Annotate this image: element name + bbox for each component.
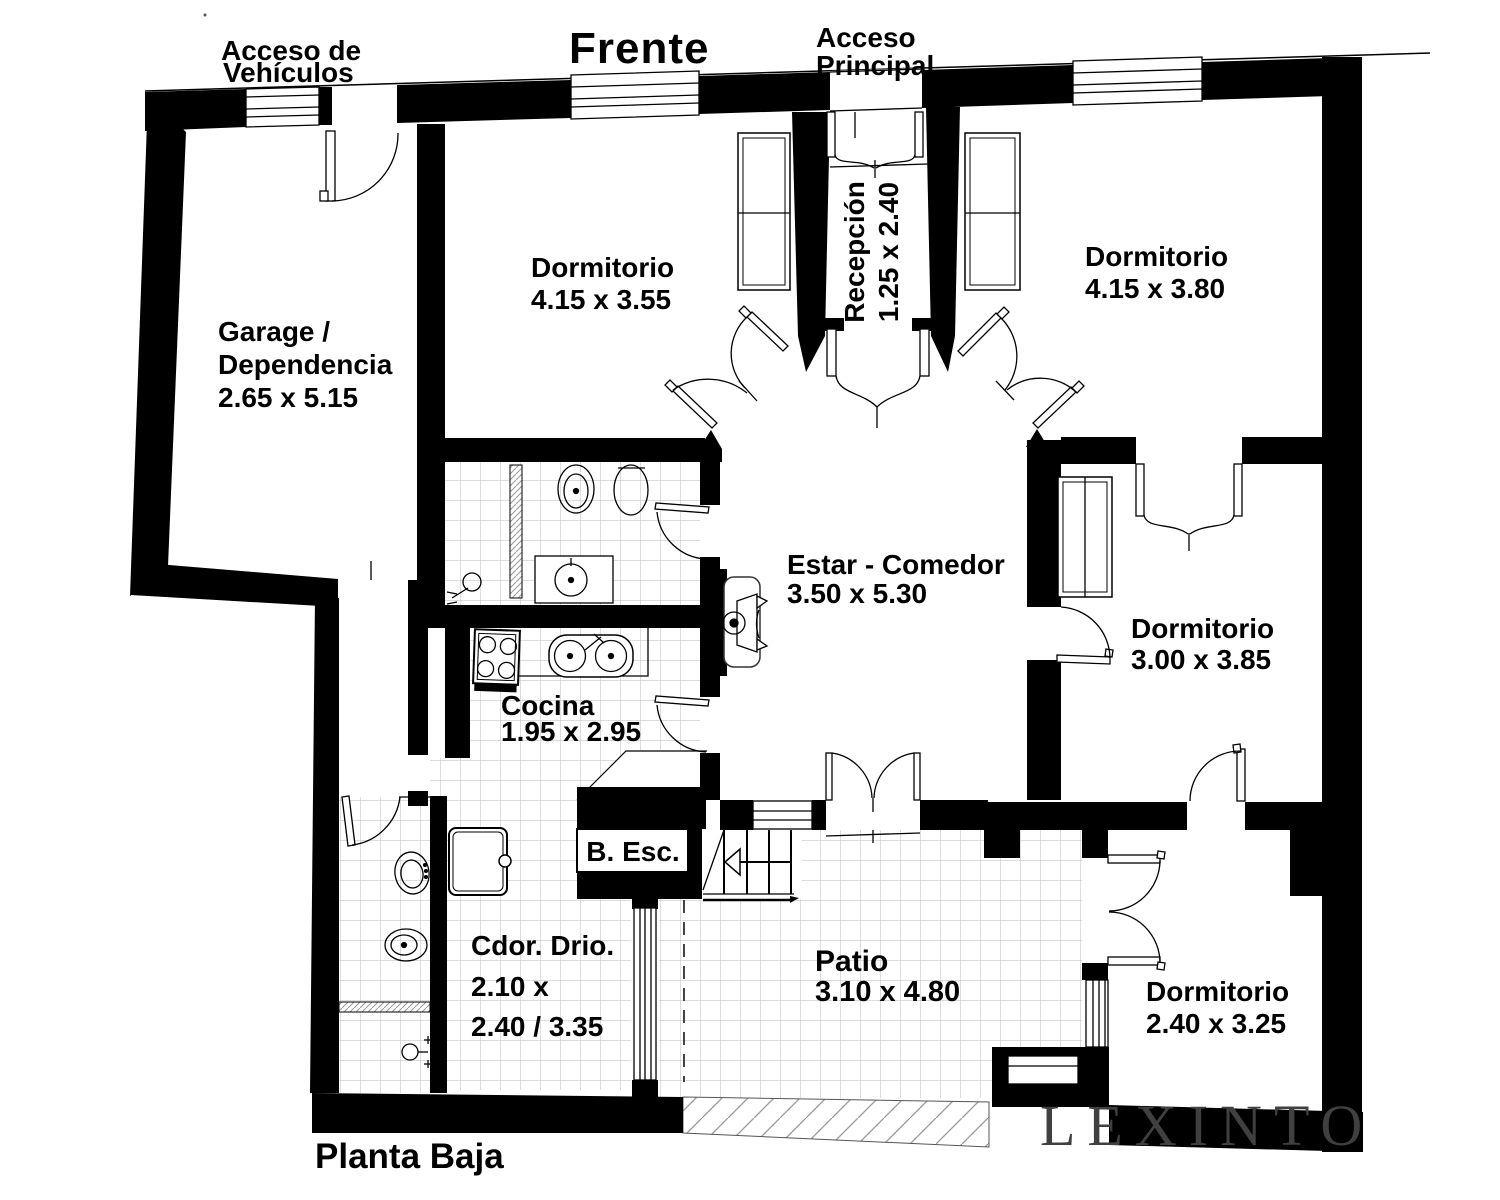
svg-text:3.10 x 4.80: 3.10 x 4.80 (815, 976, 960, 1008)
svg-text:Planta Baja: Planta Baja (315, 1137, 504, 1176)
svg-text:Patio: Patio (815, 945, 888, 978)
svg-text:4.15 x 3.55: 4.15 x 3.55 (531, 284, 671, 315)
svg-text:1.95 x 2.95: 1.95 x 2.95 (501, 716, 641, 747)
svg-text:Dormitorio: Dormitorio (531, 252, 674, 283)
svg-text:3.00 x 3.85: 3.00 x 3.85 (1131, 644, 1271, 675)
svg-text:2.10 x: 2.10 x (471, 971, 549, 1002)
svg-text:Acceso: Acceso (816, 22, 916, 53)
svg-text:Dormitorio: Dormitorio (1131, 613, 1274, 644)
svg-text:1.25 x 2.40: 1.25 x 2.40 (873, 182, 904, 322)
svg-text:Dependencia: Dependencia (218, 349, 393, 380)
svg-text:Garage /: Garage / (218, 316, 330, 347)
svg-text:Vehículos: Vehículos (223, 57, 354, 88)
svg-text:3.50 x 5.30: 3.50 x 5.30 (787, 578, 927, 609)
svg-text:Frente: Frente (569, 24, 709, 73)
svg-text:4.15 x 3.80: 4.15 x 3.80 (1085, 273, 1225, 304)
svg-text:Recepción: Recepción (839, 181, 870, 323)
svg-text:LEXINTO: LEXINTO (1040, 1093, 1374, 1158)
svg-text:2.40 / 3.35: 2.40 / 3.35 (471, 1011, 603, 1042)
svg-text:Dormitorio: Dormitorio (1146, 976, 1289, 1007)
svg-text:2.40 x 3.25: 2.40 x 3.25 (1146, 1008, 1286, 1039)
svg-text:B. Esc.: B. Esc. (586, 836, 679, 867)
svg-text:Estar - Comedor: Estar - Comedor (787, 549, 1005, 580)
svg-text:Dormitorio: Dormitorio (1085, 241, 1228, 272)
svg-text:Cdor. Drio.: Cdor. Drio. (471, 930, 614, 961)
svg-text:Principal: Principal (816, 50, 934, 81)
svg-text:2.65 x 5.15: 2.65 x 5.15 (218, 382, 358, 413)
